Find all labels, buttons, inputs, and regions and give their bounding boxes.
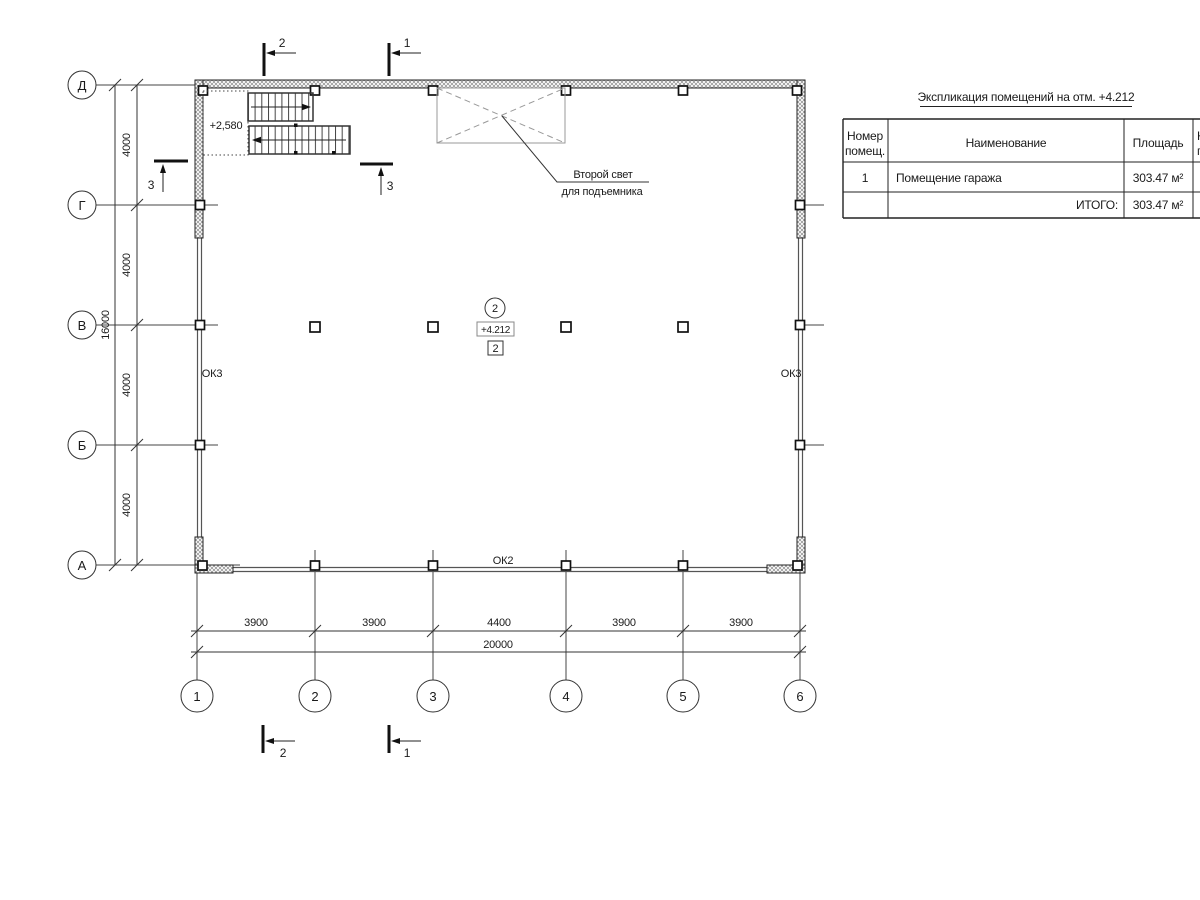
window-bands bbox=[197, 238, 803, 572]
table-title: Экспликация помещений на отм. +4.212 bbox=[918, 90, 1136, 104]
section-1-top-label: 1 bbox=[404, 36, 411, 50]
section-1-bottom-label: 1 bbox=[404, 746, 411, 760]
right-wall-upper bbox=[797, 80, 805, 238]
grid-col-2: 2 bbox=[311, 689, 318, 704]
window-label-right: ОК3 bbox=[781, 368, 802, 380]
grid-col-4: 4 bbox=[562, 689, 569, 704]
grid-row-V: В bbox=[78, 318, 87, 333]
left-wall-upper bbox=[195, 80, 203, 238]
floor-plan-drawing: 4000 4000 4000 4000 16000 3900 3900 4400… bbox=[0, 0, 1200, 900]
grid-column-bubbles: 1 2 3 4 5 6 bbox=[181, 680, 816, 712]
window-label-bottom: ОК2 bbox=[493, 555, 514, 567]
section-2-bottom-label: 2 bbox=[280, 746, 287, 760]
table-total-row: ИТОГО: 303.47 м² bbox=[1076, 198, 1183, 212]
floor-elevation: +4.212 bbox=[481, 325, 511, 336]
type-mark: 2 bbox=[493, 343, 499, 355]
dim-4000-2: 4000 bbox=[121, 253, 133, 277]
section-2-top-label: 2 bbox=[279, 36, 286, 50]
grid-row-A: А bbox=[78, 558, 87, 573]
section-3-inner-label: 3 bbox=[387, 179, 394, 193]
grid-col-1: 1 bbox=[193, 689, 200, 704]
dim-20000: 20000 bbox=[483, 639, 513, 651]
lift-opening: Второй свет для подъемника bbox=[437, 88, 649, 198]
section-3-left-label: 3 bbox=[148, 178, 155, 192]
section-mark-1-bottom: 1 bbox=[389, 725, 421, 760]
dim-4000-3: 4000 bbox=[121, 373, 133, 397]
section-mark-3-left: 3 bbox=[148, 161, 188, 192]
row-number: 1 bbox=[862, 171, 869, 185]
section-mark-2-top: 2 bbox=[264, 36, 296, 76]
col-header-number-line1: Номер bbox=[847, 129, 883, 143]
total-label: ИТОГО: bbox=[1076, 198, 1118, 212]
dim-4000-4: 4000 bbox=[121, 493, 133, 517]
annotation-line2: для подъемника bbox=[561, 186, 643, 198]
dim-3900-1: 3900 bbox=[244, 617, 268, 629]
grid-col-5: 5 bbox=[679, 689, 686, 704]
window-label-left: ОК3 bbox=[202, 368, 223, 380]
section-mark-2-bottom: 2 bbox=[263, 725, 295, 760]
drawing-canvas: 4000 4000 4000 4000 16000 3900 3900 4400… bbox=[0, 0, 1200, 900]
grid-row-G: Г bbox=[78, 198, 85, 213]
staircase: +2,580 bbox=[203, 91, 350, 155]
col-header-number-line2: помещ. bbox=[845, 144, 885, 158]
dim-3900-2: 3900 bbox=[362, 617, 386, 629]
dim-3900-3: 3900 bbox=[612, 617, 636, 629]
grid-row-D: Д bbox=[78, 78, 87, 93]
total-area: 303.47 м² bbox=[1133, 198, 1184, 212]
grid-col-3: 3 bbox=[429, 689, 436, 704]
col-header-name: Наименование bbox=[966, 136, 1047, 150]
dim-4000-1: 4000 bbox=[121, 133, 133, 157]
grid-row-bubbles: Д Г В Б А bbox=[68, 71, 96, 579]
dim-4400: 4400 bbox=[487, 617, 511, 629]
section-mark-1-top: 1 bbox=[389, 36, 421, 76]
top-wall bbox=[195, 80, 805, 88]
grid-col-6: 6 bbox=[796, 689, 803, 704]
col-header-area: Площадь bbox=[1133, 136, 1184, 150]
section-mark-3-inner: 3 bbox=[360, 164, 394, 195]
table-row: 1 Помещение гаража 303.47 м² bbox=[862, 171, 1184, 185]
row-name: Помещение гаража bbox=[896, 171, 1002, 185]
dim-3900-4: 3900 bbox=[729, 617, 753, 629]
dim-16000: 16000 bbox=[100, 310, 112, 340]
row-area: 303.47 м² bbox=[1133, 171, 1184, 185]
grid-row-B: Б bbox=[78, 438, 87, 453]
explication-table: Экспликация помещений на отм. +4.212 Ном… bbox=[843, 90, 1200, 218]
grid-column-lines bbox=[197, 550, 800, 680]
bottom-dimension-labels: 3900 3900 4400 3900 3900 20000 bbox=[244, 617, 753, 651]
annotation-line1: Второй свет bbox=[573, 169, 632, 181]
stair-elevation-label: +2,580 bbox=[210, 120, 243, 132]
room-number: 2 bbox=[492, 303, 498, 315]
room-tag: 2 +4.212 2 bbox=[477, 298, 514, 355]
